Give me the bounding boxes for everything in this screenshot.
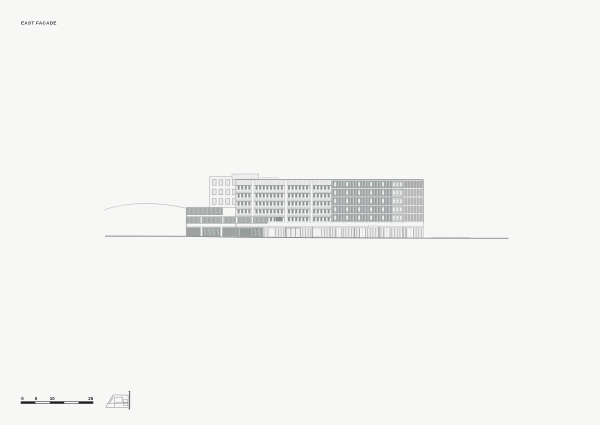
svg-text:EAST FACADE: EAST FACADE [21,21,57,26]
svg-text:5: 5 [35,396,38,401]
svg-text:25: 25 [88,396,93,401]
svg-text:10: 10 [50,396,55,401]
svg-text:0: 0 [21,396,24,401]
